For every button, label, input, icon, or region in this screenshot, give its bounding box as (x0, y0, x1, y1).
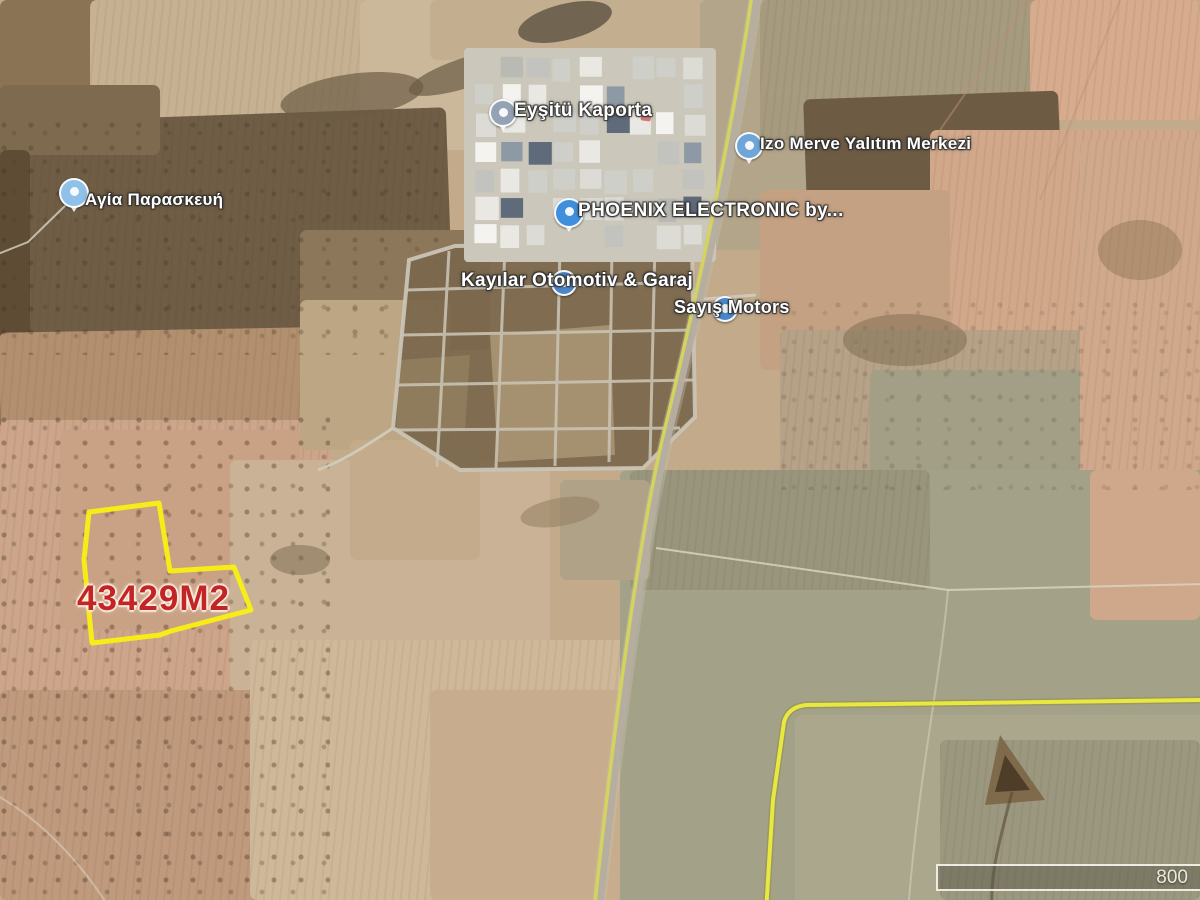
poi-label-agia-paraskevi: Αγία Παρασκευή (85, 190, 223, 210)
poi-label-izo-merve: Izo Merve Yalıtım Merkezi (760, 134, 971, 154)
business-poi-pin-icon[interactable] (735, 132, 763, 160)
satellite-map: Αγία Παρασκευή Eyşitü Kaporta Izo Merve … (0, 0, 1200, 900)
poi-label-sayis-motors: Sayış Motors (674, 297, 790, 318)
scale-distance-value: 800 (1156, 867, 1200, 889)
map-scale-bar: 800 (936, 864, 1200, 891)
business-poi-pin-icon[interactable] (489, 99, 517, 127)
poi-label-kayilar-otomotiv: Kayılar Otomotiv & Garaj (461, 270, 693, 292)
poi-label-kaporta: Eyşitü Kaporta (514, 100, 652, 122)
poi-label-phoenix-electronic: PHOENIX ELECTRONIC by... (578, 200, 844, 222)
parcel-area-label: 43429M2 (77, 579, 230, 619)
